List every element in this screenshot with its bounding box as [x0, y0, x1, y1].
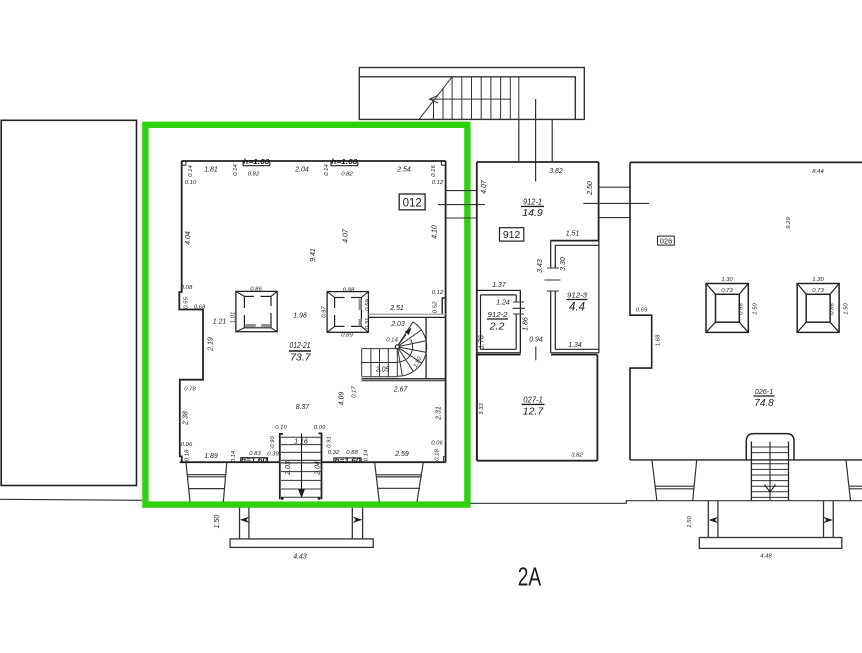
svg-text:1.50: 1.50 — [753, 303, 759, 315]
svg-text:2.2: 2.2 — [489, 321, 505, 333]
svg-text:2.31: 2.31 — [436, 406, 443, 421]
svg-text:h=1.60: h=1.60 — [241, 456, 268, 465]
svg-text:2A: 2A — [518, 564, 542, 592]
svg-text:2.50: 2.50 — [587, 181, 594, 196]
svg-text:2.67: 2.67 — [393, 387, 409, 394]
svg-text:0.86: 0.86 — [739, 303, 745, 315]
svg-text:4.10: 4.10 — [432, 225, 439, 239]
svg-text:0.12: 0.12 — [432, 290, 444, 296]
svg-text:1,50: 1,50 — [687, 516, 693, 528]
svg-text:2.03: 2.03 — [390, 321, 405, 328]
svg-text:0.17: 0.17 — [352, 386, 358, 398]
svg-text:h=1.60: h=1.60 — [335, 456, 362, 465]
svg-text:0.52: 0.52 — [433, 301, 439, 313]
svg-text:0.68: 0.68 — [194, 305, 206, 311]
svg-text:1.01: 1.01 — [231, 312, 237, 323]
svg-text:0.14: 0.14 — [364, 449, 370, 461]
svg-text:0.91: 0.91 — [327, 436, 333, 447]
svg-text:0.08: 0.08 — [181, 285, 193, 291]
svg-text:1.98: 1.98 — [293, 313, 307, 320]
svg-text:1.34: 1.34 — [568, 342, 582, 349]
svg-text:h=1.60: h=1.60 — [243, 157, 270, 166]
svg-text:0.09: 0.09 — [314, 425, 326, 431]
svg-text:2.38: 2.38 — [183, 411, 190, 426]
svg-text:0.82: 0.82 — [341, 172, 353, 178]
svg-text:14.9: 14.9 — [522, 207, 543, 219]
svg-text:h=1.60: h=1.60 — [331, 157, 358, 166]
svg-text:0.94: 0.94 — [529, 337, 543, 344]
svg-text:0.97: 0.97 — [322, 306, 328, 318]
svg-text:0.59: 0.59 — [365, 299, 371, 311]
svg-text:0.18: 0.18 — [185, 449, 191, 461]
svg-text:1.51: 1.51 — [566, 231, 580, 238]
svg-text:012: 012 — [403, 197, 422, 209]
svg-text:1.81: 1.81 — [204, 166, 218, 173]
svg-text:4,48: 4,48 — [760, 554, 772, 560]
svg-text:0.16: 0.16 — [431, 165, 437, 177]
svg-text:3.82: 3.82 — [571, 453, 583, 459]
svg-text:1.50: 1.50 — [214, 515, 221, 529]
svg-text:8.44: 8.44 — [812, 169, 824, 175]
svg-text:12.7: 12.7 — [523, 406, 545, 418]
svg-text:1.68: 1.68 — [656, 334, 662, 346]
svg-text:0.12: 0.12 — [432, 180, 444, 186]
svg-text:1.30: 1.30 — [812, 277, 824, 283]
svg-text:1.89: 1.89 — [204, 453, 218, 460]
svg-text:4.43: 4.43 — [293, 554, 307, 561]
svg-text:1.16: 1.16 — [294, 439, 308, 446]
svg-text:2.04: 2.04 — [294, 166, 309, 173]
svg-text:3.43: 3.43 — [537, 259, 544, 273]
svg-text:0.14: 0.14 — [386, 338, 398, 344]
svg-text:912-2: 912-2 — [488, 310, 509, 319]
svg-text:2.05: 2.05 — [375, 367, 390, 374]
svg-text:0.90: 0.90 — [270, 436, 276, 448]
svg-text:0.86: 0.86 — [250, 287, 262, 293]
svg-text:3.82: 3.82 — [549, 168, 563, 175]
svg-text:73.7: 73.7 — [290, 352, 312, 364]
svg-text:0.14: 0.14 — [324, 164, 330, 176]
svg-text:0.73: 0.73 — [812, 288, 824, 294]
svg-text:1.86: 1.86 — [523, 317, 530, 331]
svg-text:0.78: 0.78 — [184, 387, 196, 393]
svg-text:026-1: 026-1 — [755, 387, 774, 396]
svg-text:1.37: 1.37 — [492, 282, 507, 289]
svg-text:0.14: 0.14 — [231, 450, 237, 462]
svg-text:2.54: 2.54 — [396, 166, 411, 173]
svg-text:0.06: 0.06 — [431, 441, 443, 447]
svg-text:0.10: 0.10 — [185, 180, 197, 186]
svg-text:4.04: 4.04 — [185, 231, 192, 245]
svg-text:0.18: 0.18 — [435, 449, 441, 461]
svg-text:3.33: 3.33 — [479, 403, 485, 415]
svg-text:0.89: 0.89 — [341, 333, 353, 339]
svg-text:2.03: 2.03 — [285, 461, 292, 476]
svg-text:026: 026 — [660, 236, 673, 245]
svg-text:0.06: 0.06 — [181, 442, 193, 448]
svg-text:2.51: 2.51 — [389, 305, 404, 312]
svg-text:1.21: 1.21 — [213, 319, 227, 326]
svg-text:1.24: 1.24 — [496, 300, 510, 307]
svg-text:0.82: 0.82 — [248, 172, 260, 178]
svg-text:912-1: 912-1 — [523, 197, 542, 206]
svg-text:912: 912 — [503, 229, 521, 241]
svg-text:0.86: 0.86 — [830, 303, 836, 315]
svg-text:0.88: 0.88 — [343, 288, 355, 294]
svg-text:0.55: 0.55 — [184, 297, 190, 309]
svg-text:2.59: 2.59 — [394, 451, 409, 458]
svg-text:912-3: 912-3 — [567, 291, 588, 300]
svg-text:4.07: 4.07 — [343, 228, 350, 243]
svg-text:1.50: 1.50 — [844, 303, 850, 315]
svg-text:1.76: 1.76 — [479, 335, 486, 349]
svg-text:0.10: 0.10 — [275, 425, 287, 431]
svg-text:1.30: 1.30 — [721, 277, 733, 283]
svg-text:0.14: 0.14 — [233, 164, 239, 176]
svg-text:0.69: 0.69 — [636, 308, 648, 314]
svg-text:4.09: 4.09 — [339, 392, 346, 406]
svg-text:0.31: 0.31 — [365, 318, 371, 329]
svg-text:4.4: 4.4 — [569, 302, 585, 314]
svg-text:012-21: 012-21 — [290, 341, 311, 350]
svg-text:9.29: 9.29 — [786, 217, 792, 229]
svg-text:4.07: 4.07 — [481, 179, 488, 194]
svg-text:0.73: 0.73 — [721, 288, 733, 294]
svg-text:027-1: 027-1 — [523, 395, 543, 404]
svg-text:9.41: 9.41 — [310, 248, 317, 262]
svg-text:3.30: 3.30 — [560, 257, 567, 271]
svg-text:8.37: 8.37 — [296, 404, 311, 411]
svg-text:74.8: 74.8 — [754, 398, 774, 409]
svg-text:0.14: 0.14 — [188, 165, 194, 177]
svg-text:2.04: 2.04 — [315, 461, 322, 476]
svg-text:0.39: 0.39 — [267, 452, 279, 458]
svg-text:2.19: 2.19 — [208, 337, 215, 352]
